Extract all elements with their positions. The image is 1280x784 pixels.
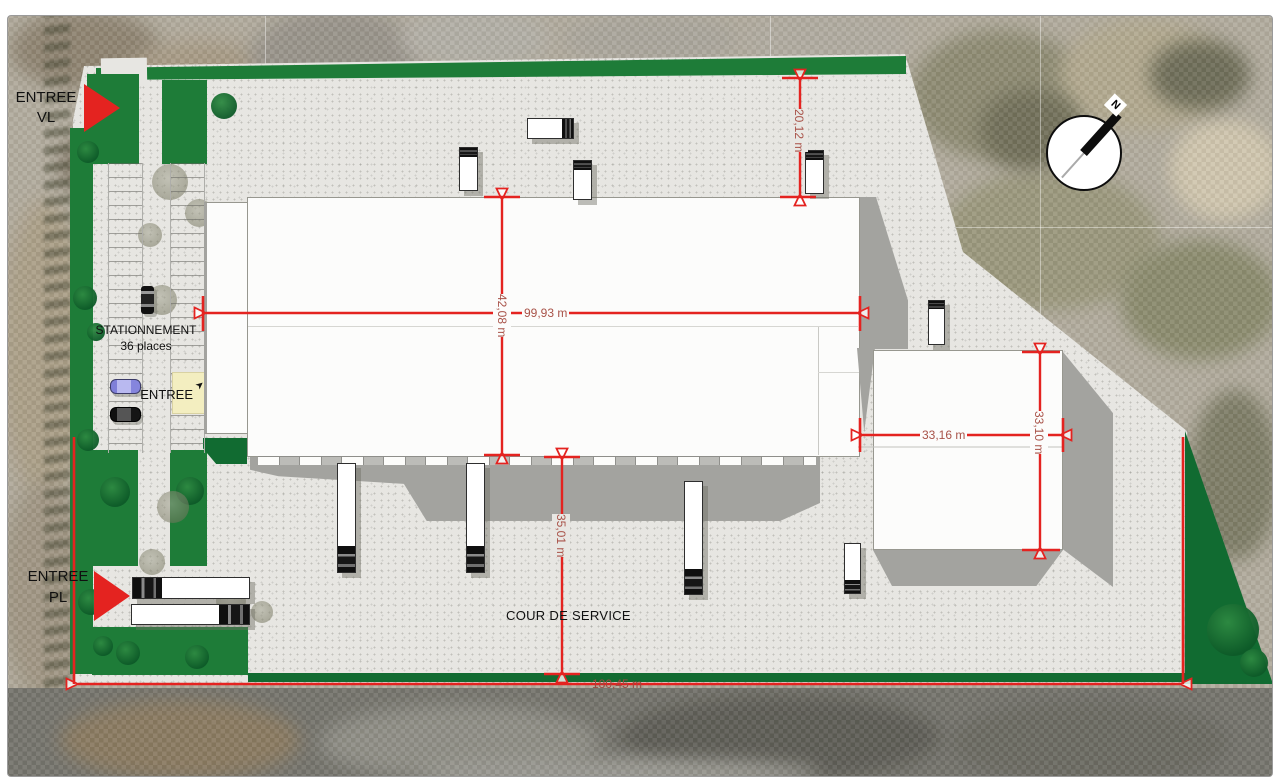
dimension-site-frontage: 180,45 m: [592, 677, 642, 691]
building-entrance-label: ENTREE: [131, 387, 193, 402]
site-plan-page: 99,93 m 42,08 m 20,12 m 33,16 m 33,10 m …: [0, 0, 1280, 784]
entrance-vl-line1: ENTREE: [16, 89, 77, 106]
parking-label: STATIONNEMENT 36 places: [84, 322, 208, 354]
parking-label-line2: 36 places: [120, 339, 171, 353]
entrance-pl-line1: ENTREE: [28, 568, 89, 585]
aerial-photo: 99,93 m 42,08 m 20,12 m 33,16 m 33,10 m …: [7, 15, 1273, 777]
courtyard-label: COUR DE SERVICE: [506, 608, 631, 623]
parking-label-line1: STATIONNEMENT: [96, 323, 197, 337]
dimension-building-length: 99,93 m: [522, 306, 569, 320]
dimension-north-setback: 20,12 m: [790, 109, 808, 152]
entrance-pl-line2: PL: [49, 589, 67, 606]
dimension-service-yard-depth: 35,01 m: [552, 514, 570, 557]
pl-entrance-arrow: [94, 571, 130, 621]
dimension-annex-depth: 33,10 m: [1030, 411, 1048, 454]
entrance-vl-label: ENTREE VL: [7, 88, 86, 128]
entrance-pl-label: ENTREE PL: [18, 566, 98, 608]
vl-entrance-arrow: [84, 84, 120, 132]
entrance-vl-line2: VL: [37, 109, 55, 126]
dimension-building-depth: 42,08 m: [493, 294, 511, 337]
dimension-annex-width: 33,16 m: [920, 428, 967, 442]
